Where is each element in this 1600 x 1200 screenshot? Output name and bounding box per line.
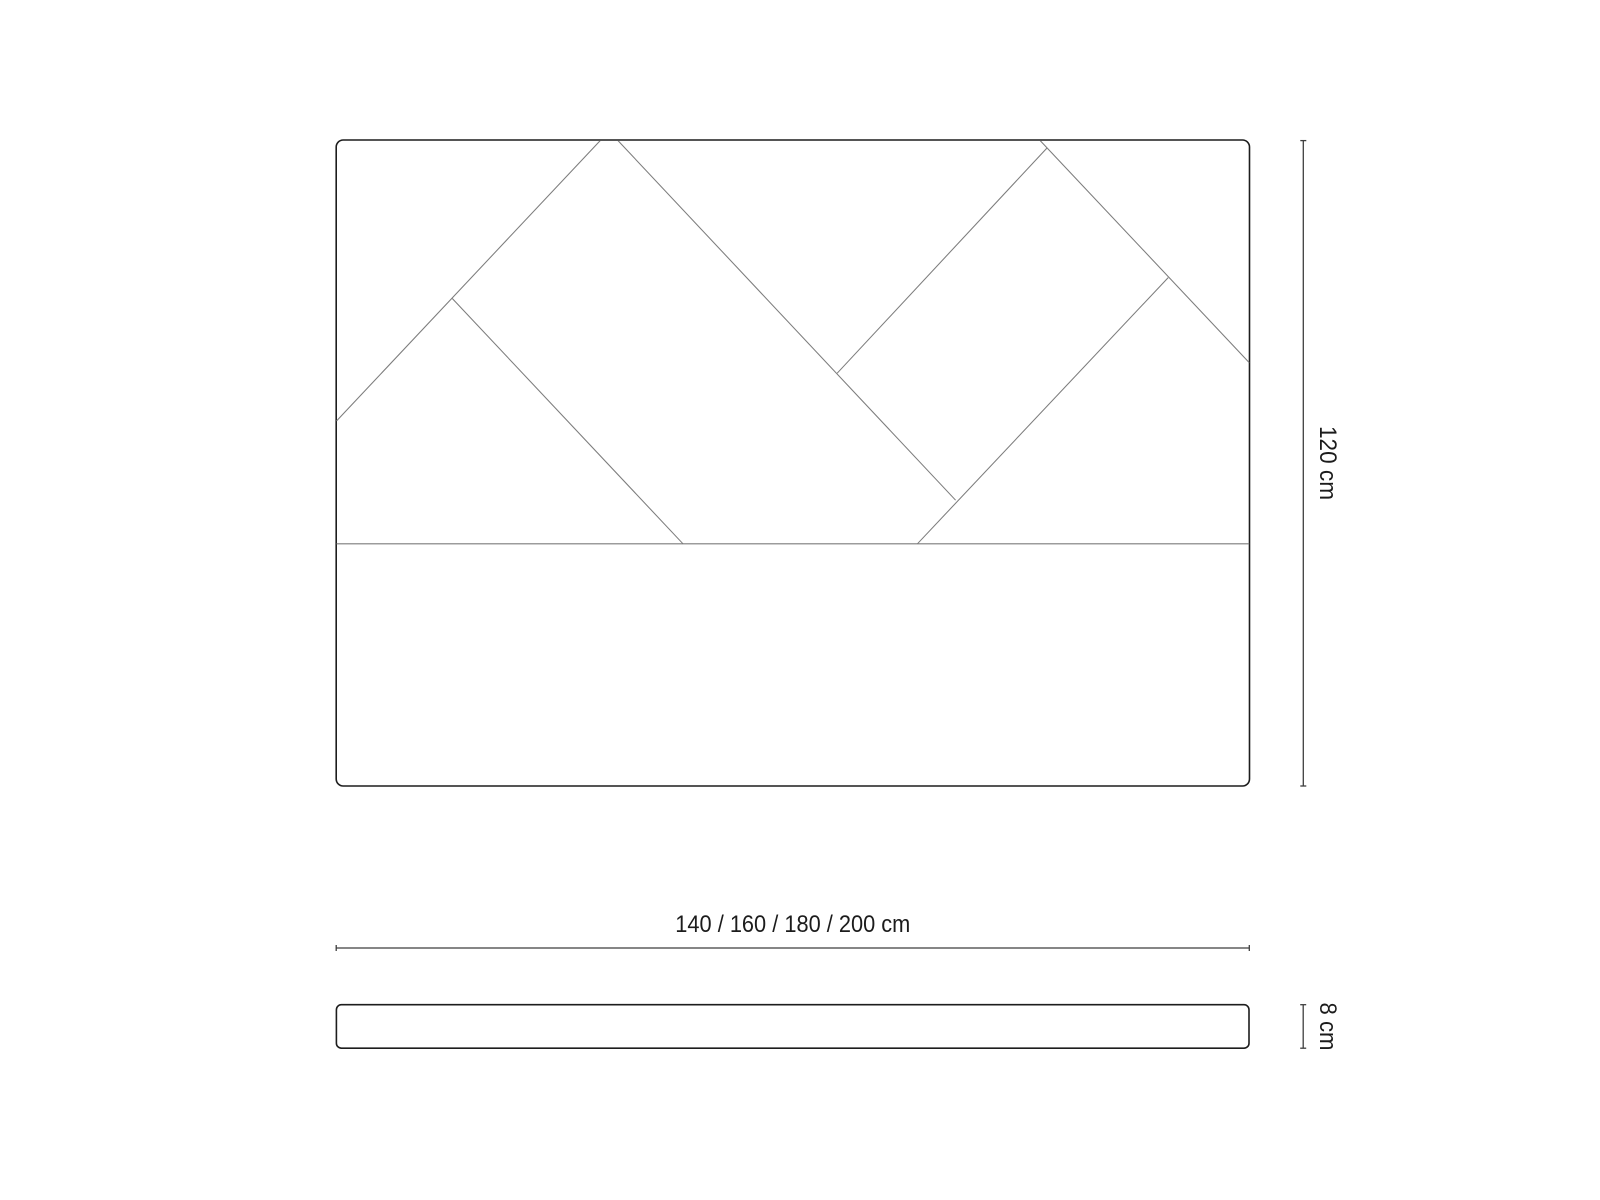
svg-text:140 / 160 / 180 / 200 cm: 140 / 160 / 180 / 200 cm (675, 911, 910, 938)
svg-text:8 cm: 8 cm (1314, 1003, 1341, 1051)
svg-text:120 cm: 120 cm (1314, 426, 1341, 500)
